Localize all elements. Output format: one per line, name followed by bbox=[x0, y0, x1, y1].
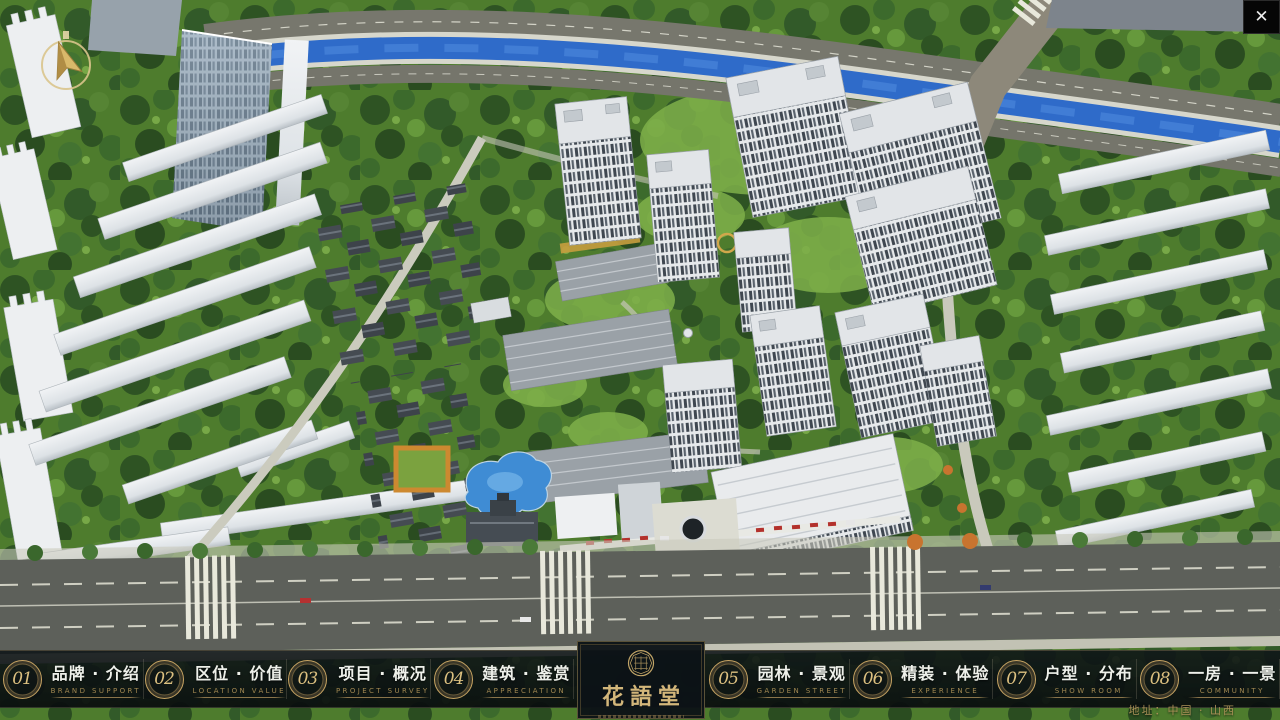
menu-item-underline bbox=[193, 697, 286, 698]
close-button[interactable]: ✕ bbox=[1243, 0, 1280, 34]
menu-item-location-badge: 02 bbox=[145, 660, 184, 699]
logo-title: 花語堂 bbox=[596, 679, 686, 711]
menu-right-group: 05 园林 · 景观 GARDEN STREET 06 精装 · 体验 EXPE… bbox=[706, 651, 1280, 707]
logo-seal-icon bbox=[624, 648, 658, 678]
menu-item-brand-sublabel: BRAND SUPPORT bbox=[51, 687, 141, 695]
menu-item-garden-sublabel: GARDEN STREET bbox=[757, 687, 847, 695]
menu-item-location-sublabel: LOCATION VALUE bbox=[193, 687, 286, 695]
menu-item-underline bbox=[482, 697, 570, 698]
orange-roof-building bbox=[396, 448, 448, 490]
menu-item-brand-badge: 01 bbox=[3, 660, 42, 699]
menu-item-community-sublabel: COMMUNITY bbox=[1200, 687, 1265, 695]
menu-item-project[interactable]: 03 项目 · 概况 PROJECT SURVEY bbox=[287, 651, 431, 707]
menu-item-project-label: 项目 · 概况 bbox=[339, 660, 427, 684]
menu-item-architecture[interactable]: 04 建筑 · 鉴赏 APPRECIATION bbox=[431, 651, 575, 707]
menu-item-garden-label: 园林 · 景观 bbox=[758, 660, 846, 684]
menu-item-garden[interactable]: 05 园林 · 景观 GARDEN STREET bbox=[706, 651, 850, 707]
menu-item-underline bbox=[901, 697, 989, 698]
menu-item-experience-badge: 06 bbox=[853, 660, 892, 699]
menu-item-underline bbox=[1188, 697, 1276, 698]
menu-item-community[interactable]: 08 一房 · 一景 COMMUNITY bbox=[1137, 651, 1280, 707]
menu-item-underline bbox=[1045, 697, 1133, 698]
menu-item-experience[interactable]: 06 精装 · 体验 EXPERIENCE bbox=[850, 651, 994, 707]
menu-item-location[interactable]: 02 区位 · 价值 LOCATION VALUE bbox=[144, 651, 288, 707]
address-label: 地址：中国 · 山西 bbox=[1129, 702, 1237, 718]
menu-item-garden-badge: 05 bbox=[709, 660, 748, 699]
menu-item-architecture-sublabel: APPRECIATION bbox=[486, 687, 566, 695]
compass-icon bbox=[34, 30, 98, 96]
logo-subtext-line bbox=[598, 715, 684, 718]
menu-item-location-label: 区位 · 价值 bbox=[195, 660, 283, 684]
menu-item-underline bbox=[336, 697, 430, 698]
menu-item-experience-sublabel: EXPERIENCE bbox=[911, 687, 979, 695]
menu-left-group: 01 品牌 · 介绍 BRAND SUPPORT 02 区位 · 价值 LOCA… bbox=[0, 651, 574, 707]
logo-panel[interactable]: 花語堂 bbox=[577, 641, 705, 719]
menu-item-brand-label: 品牌 · 介绍 bbox=[52, 660, 140, 684]
menu-item-architecture-badge: 04 bbox=[434, 660, 473, 699]
menu-item-brand[interactable]: 01 品牌 · 介绍 BRAND SUPPORT bbox=[0, 651, 144, 707]
menu-item-project-badge: 03 bbox=[288, 660, 327, 699]
menu-item-floorplan-sublabel: SHOW ROOM bbox=[1055, 687, 1123, 695]
menu-item-community-badge: 08 bbox=[1140, 660, 1179, 699]
menu-item-community-label: 一房 · 一景 bbox=[1188, 660, 1276, 684]
entrance-emblem bbox=[681, 517, 705, 541]
menu-item-floorplan-badge: 07 bbox=[997, 660, 1036, 699]
menu-item-project-sublabel: PROJECT SURVEY bbox=[336, 687, 430, 695]
menu-item-floorplan[interactable]: 07 户型 · 分布 SHOW ROOM bbox=[993, 651, 1137, 707]
aerial-render bbox=[0, 0, 1280, 720]
menu-item-floorplan-label: 户型 · 分布 bbox=[1045, 660, 1133, 684]
menu-item-architecture-label: 建筑 · 鉴赏 bbox=[482, 660, 570, 684]
menu-item-experience-label: 精装 · 体验 bbox=[901, 660, 989, 684]
sandbox-viewer: ✕ 01 品牌 · 介绍 BRAND SUPPORT 02 区位 · 价值 LO… bbox=[0, 0, 1280, 720]
menu-item-underline bbox=[51, 697, 141, 698]
menu-item-underline bbox=[757, 697, 847, 698]
fountain bbox=[684, 329, 693, 338]
